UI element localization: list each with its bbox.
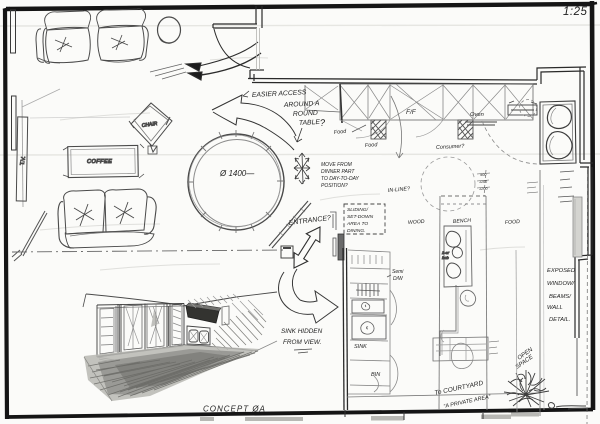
svg-text:D/W: D/W: [393, 276, 404, 282]
svg-text:WALL: WALL: [547, 305, 563, 311]
svg-text:BIN: BIN: [371, 372, 380, 378]
svg-text:Semi: Semi: [392, 269, 404, 275]
svg-text:DETAIL.: DETAIL.: [549, 317, 570, 323]
svg-text:BEAMS/: BEAMS/: [549, 294, 572, 300]
svg-text:FROM VIEW.: FROM VIEW.: [283, 339, 321, 346]
svg-text:WOOD: WOOD: [408, 219, 425, 226]
svg-text:BENCH: BENCH: [453, 218, 472, 225]
svg-text:SINK HIDDEN: SINK HIDDEN: [281, 328, 323, 335]
svg-text:TABLE: TABLE: [299, 119, 321, 127]
svg-text:POSITION?: POSITION?: [321, 183, 348, 189]
svg-text:1:25: 1:25: [563, 6, 587, 18]
svg-text:Oven: Oven: [470, 112, 484, 118]
svg-text:SET-DOWN: SET-DOWN: [347, 214, 374, 220]
svg-text:SLIDING/: SLIDING/: [347, 207, 369, 213]
svg-text:EXPOSED: EXPOSED: [547, 268, 575, 274]
svg-text:Food: Food: [365, 142, 379, 149]
svg-text:MOVE FROM: MOVE FROM: [321, 162, 353, 168]
svg-text:DINING.: DINING.: [347, 228, 365, 234]
svg-text:FOOD: FOOD: [505, 219, 521, 226]
svg-text:COFFEE: COFFEE: [87, 159, 112, 165]
svg-text:SINK: SINK: [354, 344, 367, 350]
svg-text:F/F: F/F: [406, 109, 417, 116]
svg-text:WINDOW/: WINDOW/: [547, 281, 575, 287]
svg-text:AREA TO: AREA TO: [346, 221, 368, 227]
svg-text:TO DAY-TO-DAY: TO DAY-TO-DAY: [321, 176, 360, 182]
svg-text:hob: hob: [442, 255, 449, 260]
svg-text:ROUND: ROUND: [293, 110, 318, 118]
svg-text:CONCEPT ØA: CONCEPT ØA: [203, 405, 266, 414]
svg-text:DINNER PART: DINNER PART: [321, 169, 355, 175]
svg-text:Ø 1400—: Ø 1400—: [219, 169, 255, 178]
